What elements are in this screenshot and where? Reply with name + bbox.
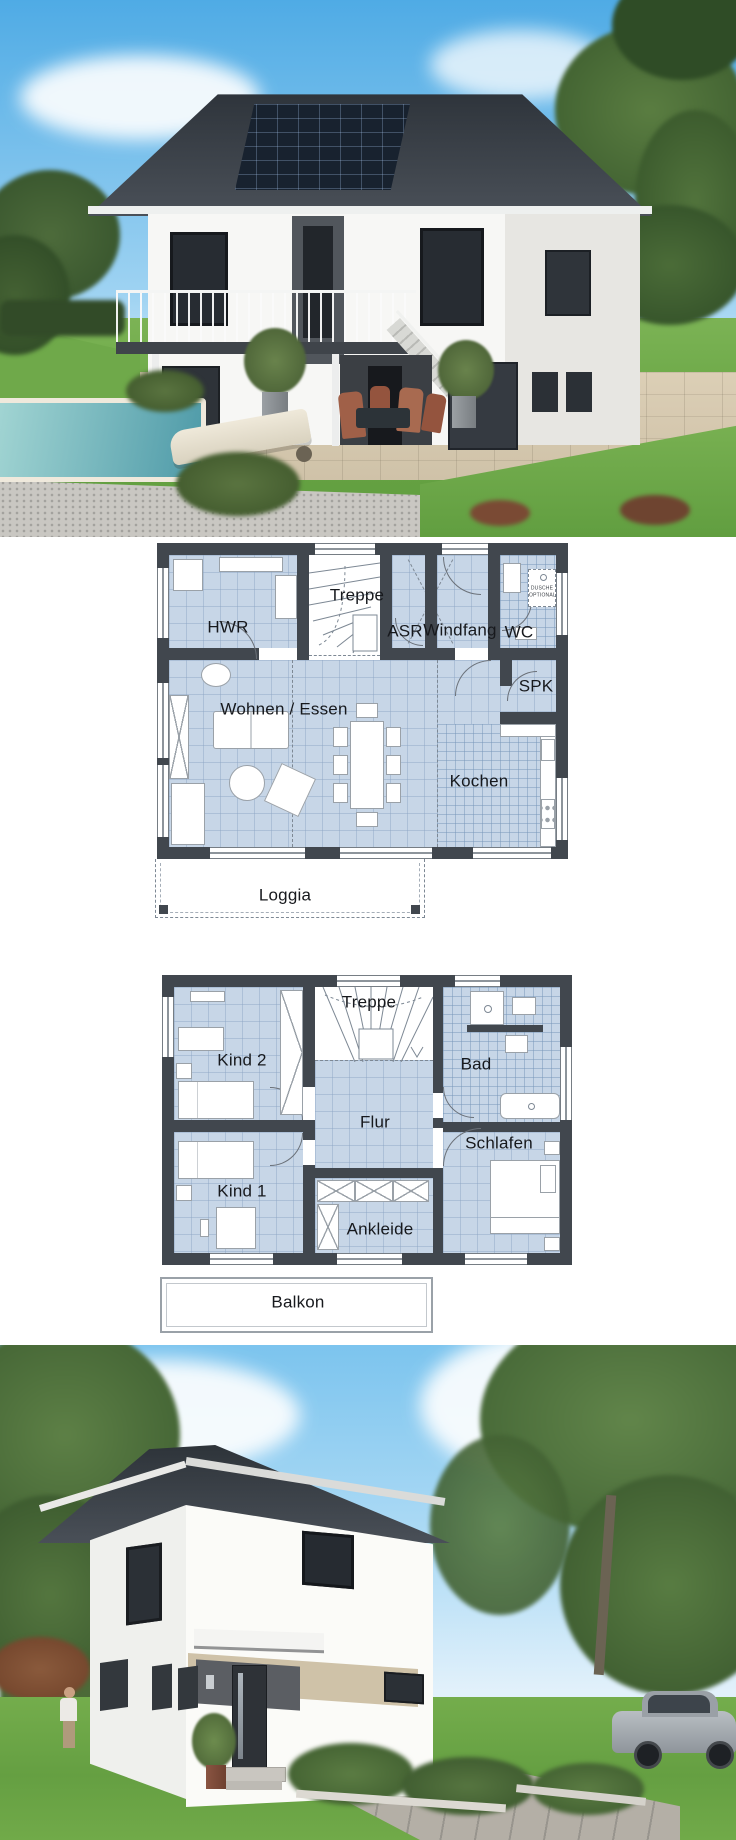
chair xyxy=(356,703,378,718)
room-label-wc: WC xyxy=(505,624,534,641)
lounger-wheel xyxy=(296,446,312,462)
desk-kind1 xyxy=(216,1207,256,1249)
entrance-steps xyxy=(222,1767,286,1782)
chair xyxy=(333,755,348,775)
window-left-small xyxy=(178,1666,198,1711)
chair xyxy=(386,783,401,803)
room-label-treppe-og: Treppe xyxy=(342,994,396,1011)
sink xyxy=(541,739,555,761)
wall xyxy=(303,1165,315,1253)
toilet xyxy=(512,997,536,1015)
car-wheel xyxy=(706,1741,734,1769)
dining-table xyxy=(356,408,410,428)
wall xyxy=(303,1120,315,1140)
room-label-kind1: Kind 1 xyxy=(217,1183,266,1200)
wall xyxy=(443,1122,560,1132)
olive-tree xyxy=(244,328,306,394)
cabinet xyxy=(275,575,297,619)
photo-exterior-street-view xyxy=(0,1345,736,1840)
window-upper-right xyxy=(420,228,484,326)
room-label-windfang: Windfang xyxy=(423,622,496,639)
closet xyxy=(317,1204,339,1250)
washer xyxy=(173,559,203,591)
loggia-post xyxy=(411,905,420,914)
bush xyxy=(176,452,300,516)
wall xyxy=(303,1168,442,1178)
nightstand xyxy=(544,1141,560,1155)
roof-fascia xyxy=(88,206,652,214)
plant-pot xyxy=(206,1765,226,1789)
window-left-small xyxy=(100,1659,128,1711)
wall xyxy=(560,975,572,1265)
window-left-small xyxy=(152,1664,172,1711)
room-wohnen-essen xyxy=(169,660,437,847)
photo-exterior-garden-view xyxy=(0,0,736,537)
window xyxy=(210,1253,273,1265)
shower-drain xyxy=(484,1005,492,1013)
person-legs xyxy=(63,1721,75,1748)
wall xyxy=(303,987,315,1087)
window xyxy=(157,568,169,638)
wall xyxy=(433,1168,443,1253)
chair xyxy=(356,812,378,827)
room-label-treppe: Treppe xyxy=(330,587,384,604)
pillow xyxy=(540,1165,556,1193)
closet xyxy=(393,1180,429,1202)
window xyxy=(455,975,500,987)
wall xyxy=(500,660,512,686)
closet xyxy=(355,1180,393,1202)
car-window xyxy=(648,1695,710,1713)
lamp-kind1 xyxy=(200,1219,209,1237)
chair xyxy=(386,755,401,775)
side-table xyxy=(201,663,231,687)
room-label-kind2: Kind 2 xyxy=(217,1052,266,1069)
window-side-lower xyxy=(532,372,558,412)
cooktop xyxy=(541,799,555,829)
planter xyxy=(452,396,476,428)
chair xyxy=(333,783,348,803)
bath-partition xyxy=(467,1025,543,1032)
window xyxy=(337,975,400,987)
window xyxy=(157,765,169,837)
window xyxy=(556,573,568,635)
bath-sink xyxy=(505,1035,528,1053)
window xyxy=(157,683,169,758)
potted-tree-foliage xyxy=(192,1713,236,1769)
kitchen-counter-top xyxy=(500,724,556,737)
zone-divider xyxy=(292,660,293,847)
window-front-upper xyxy=(302,1531,354,1590)
red-plant xyxy=(470,500,530,526)
car-wheel xyxy=(634,1741,662,1769)
window xyxy=(473,847,551,859)
window-side-lower xyxy=(566,372,592,412)
bed-kind2 xyxy=(178,1081,254,1119)
hedge xyxy=(0,300,125,336)
bed-kind1 xyxy=(178,1141,254,1179)
wall xyxy=(433,1118,443,1128)
stair-open-edge xyxy=(315,1060,433,1061)
tree-branch-drooping xyxy=(430,1435,570,1615)
counter xyxy=(219,557,283,572)
shelf xyxy=(169,695,189,779)
room-label-schlafen: Schlafen xyxy=(465,1135,533,1152)
room-label-bad: Bad xyxy=(461,1056,492,1073)
room-label-spk: SPK xyxy=(519,678,554,695)
room-label-ankleide: Ankleide xyxy=(347,1221,414,1238)
nightstand xyxy=(544,1237,560,1251)
screenshot-root: DUSCHE OPTIONAL HWR Treppe ASR Windfang … xyxy=(0,0,736,1840)
tub-drain xyxy=(528,1103,535,1110)
sofa-left xyxy=(171,783,205,845)
label-balkon: Balkon xyxy=(271,1294,324,1311)
closet xyxy=(317,1180,355,1202)
wall xyxy=(380,555,392,660)
room-label-asr: ASR xyxy=(387,623,423,640)
room-label-flur: Flur xyxy=(360,1114,390,1131)
person-torso xyxy=(60,1698,77,1721)
window xyxy=(560,1047,572,1120)
stair-open-edge xyxy=(309,655,380,656)
wc-cabinet xyxy=(503,563,521,593)
window xyxy=(162,997,174,1057)
chair xyxy=(386,727,401,747)
wall xyxy=(425,555,437,660)
door-glass-strip xyxy=(238,1673,243,1759)
shelf-kind2 xyxy=(190,991,225,1002)
wall xyxy=(500,712,568,724)
wall xyxy=(433,987,443,1093)
wall xyxy=(174,1120,303,1132)
nightstand-kind2 xyxy=(176,1063,192,1079)
label-loggia: Loggia xyxy=(259,887,311,904)
olive-tree xyxy=(438,340,494,400)
wall xyxy=(380,648,455,660)
loggia-post xyxy=(159,905,168,914)
wall xyxy=(297,555,309,660)
room-label-kochen: Kochen xyxy=(450,773,509,790)
shower-optional-label: DUSCHE OPTIONAL xyxy=(529,586,555,599)
chair xyxy=(333,727,348,747)
balcony-door xyxy=(337,1253,402,1265)
drain xyxy=(540,574,547,581)
window xyxy=(465,1253,527,1265)
window xyxy=(315,543,375,555)
terrace-door xyxy=(340,847,432,859)
zone-divider xyxy=(437,660,438,847)
wall xyxy=(488,555,500,660)
dining-table xyxy=(350,721,384,809)
solar-panels xyxy=(235,104,410,190)
wall xyxy=(500,648,568,660)
window-side-upper xyxy=(545,250,591,316)
wardrobe-kind2 xyxy=(280,990,303,1115)
coffee-table xyxy=(229,765,265,801)
room-label-wohnen-essen: Wohnen / Essen xyxy=(220,701,347,718)
floor-plan-upper: Treppe Kind 2 Bad Flur Schlafen Kind 1 A… xyxy=(160,975,575,1335)
red-plant xyxy=(620,495,690,525)
shower-optional: DUSCHE OPTIONAL xyxy=(528,569,556,607)
stair-flight xyxy=(309,555,380,655)
nightstand-kind1 xyxy=(176,1185,192,1201)
window-front-lower-right xyxy=(384,1672,424,1705)
bush xyxy=(126,370,204,412)
window xyxy=(210,847,305,859)
person-head xyxy=(64,1687,75,1698)
floor-plan-ground: DUSCHE OPTIONAL HWR Treppe ASR Windfang … xyxy=(155,543,570,919)
window xyxy=(556,778,568,840)
room-label-hwr: HWR xyxy=(207,619,248,636)
doorbell-light xyxy=(206,1675,214,1689)
entrance-steps xyxy=(226,1781,282,1790)
window-left-upper xyxy=(126,1542,162,1625)
entry-door xyxy=(442,543,488,555)
desk-kind2 xyxy=(178,1027,224,1051)
